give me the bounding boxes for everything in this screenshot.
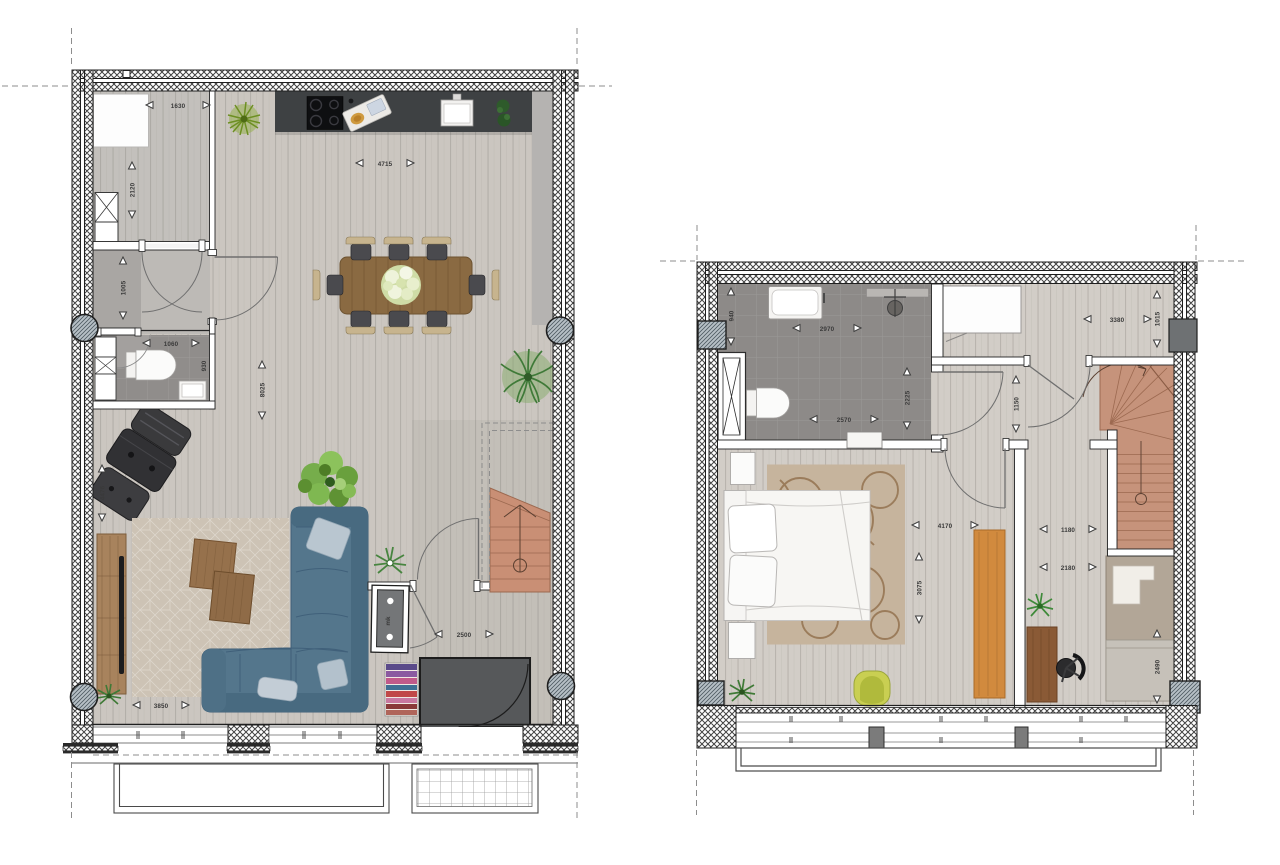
svg-text:3075: 3075 — [917, 580, 924, 595]
svg-text:4715: 4715 — [378, 161, 393, 168]
svg-text:1180: 1180 — [1061, 527, 1075, 534]
svg-text:1150: 1150 — [1014, 397, 1021, 411]
svg-text:2970: 2970 — [820, 326, 835, 333]
svg-text:2500: 2500 — [457, 632, 472, 639]
svg-text:3380: 3380 — [1110, 317, 1125, 324]
svg-text:2180: 2180 — [1061, 565, 1076, 572]
svg-text:2225: 2225 — [905, 390, 912, 405]
svg-text:4476: 4476 — [100, 485, 107, 500]
svg-text:2570: 2570 — [837, 417, 852, 424]
svg-text:2490: 2490 — [1155, 659, 1162, 674]
svg-text:mk: mk — [385, 616, 392, 626]
svg-text:4170: 4170 — [938, 523, 953, 530]
svg-text:1005: 1005 — [121, 280, 128, 295]
svg-text:2120: 2120 — [130, 182, 137, 197]
svg-text:8025: 8025 — [260, 382, 267, 397]
svg-text:940: 940 — [729, 310, 736, 321]
svg-text:1630: 1630 — [171, 103, 186, 110]
svg-text:3850: 3850 — [154, 703, 169, 710]
svg-text:1015: 1015 — [1155, 311, 1162, 326]
svg-text:930: 930 — [201, 360, 208, 371]
svg-text:1060: 1060 — [164, 341, 179, 348]
